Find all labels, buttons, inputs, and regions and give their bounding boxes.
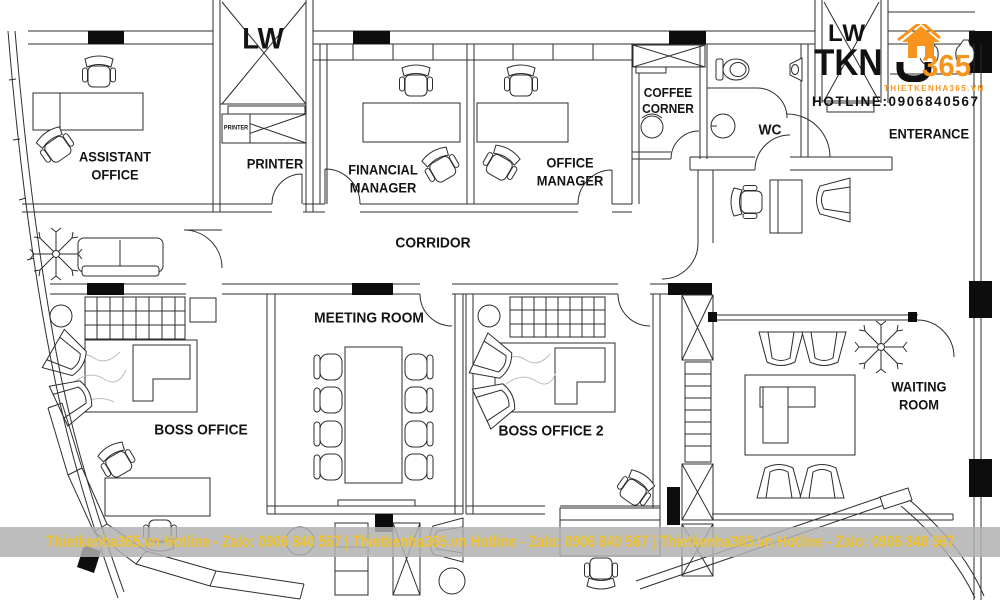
room-label-boss-office: BOSS OFFICE: [154, 422, 248, 441]
waiting-room: [708, 312, 954, 520]
floorplan-page: ASSISTANT OFFICE PRINTER FINANCIAL MANAG…: [0, 0, 1000, 600]
room-label-coffee-corner: COFFEE CORNER: [642, 85, 694, 118]
elevator-label: LW: [242, 20, 283, 58]
room-label-financial-manager: FINANCIAL MANAGER: [348, 162, 417, 197]
room-label-corridor: CORRIDOR: [395, 235, 470, 254]
brand-watermark: LW TKN 365 THIETKENHA365.VN HOTLINE:0906…: [812, 20, 992, 115]
room-label-boss-office-2: BOSS OFFICE 2: [498, 423, 603, 442]
room-label-assistant-office: ASSISTANT OFFICE: [79, 149, 151, 184]
brand-365-text: 365: [922, 48, 971, 84]
room-label-waiting-room: WAITING ROOM: [882, 379, 957, 414]
room-label-wc: WC: [759, 122, 782, 141]
room-label-printer: PRINTER: [247, 155, 304, 173]
room-label-meeting-room: MEETING ROOM: [314, 310, 424, 329]
footer-watermark-band: Thietkenha365.vn Hotline - Zalo: 0906 84…: [0, 527, 1000, 557]
brand-site-text: THIETKENHA365.VN: [884, 84, 985, 93]
wc-room: [707, 44, 808, 157]
brand-hotline-text: HOTLINE:0906840567: [812, 94, 980, 109]
brand-tkn-text: TKN: [814, 42, 882, 84]
room-label-office-manager: OFFICE MANAGER: [537, 155, 604, 190]
printer-unit-label: PRINTER: [224, 125, 248, 133]
footer-watermark-text: Thietkenha365.vn Hotline - Zalo: 0906 84…: [46, 532, 955, 552]
corridor-north-wall: [22, 204, 632, 212]
room-label-enterance: ENTERANCE: [889, 125, 969, 143]
corridor-lounge: [30, 228, 163, 280]
meeting-room: [267, 294, 463, 532]
